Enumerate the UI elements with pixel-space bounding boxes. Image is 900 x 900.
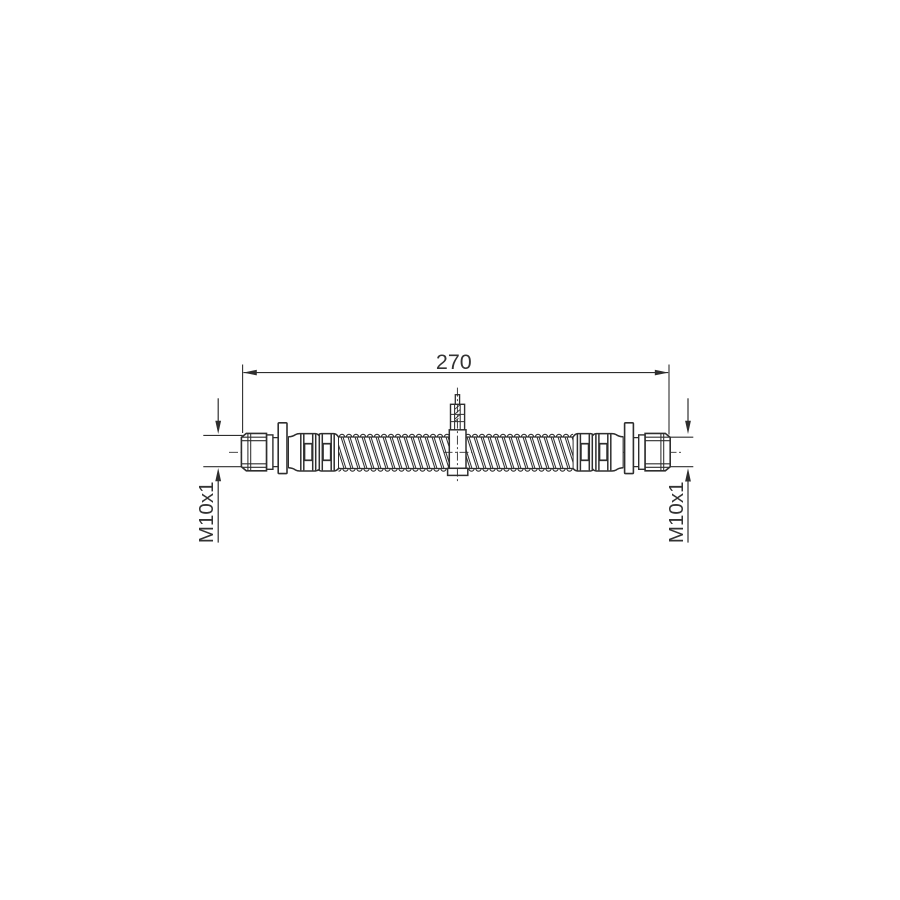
- collar: [267, 435, 273, 469]
- hex-nut: [645, 433, 670, 470]
- crimp-groove: [581, 444, 589, 461]
- thread-label-left: M10x1: [195, 482, 218, 544]
- end-fitting-right: [573, 423, 670, 474]
- flange: [278, 423, 287, 474]
- flange: [625, 423, 634, 474]
- crimp-groove: [600, 444, 608, 461]
- collar: [639, 435, 645, 469]
- end-fitting-left: [241, 423, 338, 474]
- thread-label-right: M10x1: [665, 482, 688, 544]
- crimp-groove: [305, 444, 313, 461]
- crimp-groove: [323, 444, 331, 461]
- arrow-up-icon: [215, 468, 221, 481]
- brake-hose-technical-drawing: 270 M10x1 M10x1: [0, 0, 900, 900]
- dimension-arrow-left-icon: [243, 370, 257, 376]
- arrow-down-icon: [215, 421, 221, 434]
- arrow-up-icon: [685, 468, 691, 481]
- dimension-arrow-right-icon: [655, 370, 669, 376]
- length-dimension-label: 270: [436, 350, 472, 374]
- product-drawing-canvas: 270 M10x1 M10x1: [0, 0, 900, 900]
- hex-nut: [241, 433, 266, 470]
- arrow-down-icon: [685, 421, 691, 434]
- thread-callout-left: M10x1: [195, 398, 245, 543]
